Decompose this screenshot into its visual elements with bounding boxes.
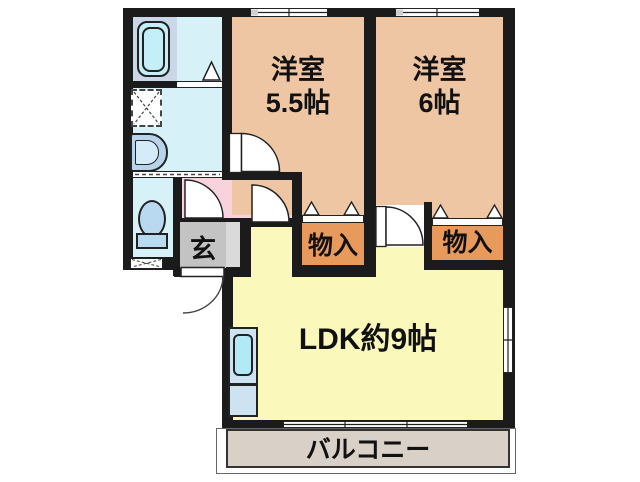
floor-plan: 洋室 5.5帖 洋室 6帖 LDK約9帖 物入 物入 玄 バルコニー (0, 0, 640, 482)
window-toilet-icon (130, 258, 163, 269)
wall-hall-top (222, 172, 302, 180)
wall-closet-left-side (292, 172, 302, 277)
window-ldk-right-icon (503, 307, 513, 373)
bedroom1-size: 5.5帖 (266, 87, 331, 120)
ldk-label: LDK約9帖 (233, 318, 503, 354)
bedroom1-name: 洋室 (271, 54, 325, 87)
closet-left-door-track-icon (302, 215, 364, 223)
wall-closet-left-bottom (292, 265, 376, 277)
window-bedroom1-icon (250, 8, 328, 17)
balcony-label: バルコニー (226, 433, 510, 463)
bathroom-floor (177, 17, 222, 81)
kitchen-counter-lower-icon (228, 384, 258, 417)
wall-closet-right-bottom (424, 260, 515, 270)
bedroom2-label: 洋室 6帖 (383, 52, 496, 122)
accordion-door-track-icon (133, 171, 222, 178)
closet-left-label: 物入 (302, 227, 364, 261)
window-bedroom2-icon (395, 8, 480, 17)
wall-entry-bottom (174, 267, 251, 277)
entrance-label: 玄 (180, 230, 226, 264)
wall-column-right (222, 8, 232, 180)
front-door-arc-icon (183, 276, 223, 313)
bedroom2-size: 6帖 (418, 87, 460, 120)
bathtub-inner-icon (142, 27, 165, 72)
bedroom2-doorway (376, 205, 427, 247)
toilet-tank-icon (136, 233, 168, 249)
wall-closet-right-side (424, 202, 432, 268)
closet-right-label: 物入 (432, 224, 503, 258)
bedroom1-label: 洋室 5.5帖 (238, 52, 358, 122)
bath-door-track-icon (177, 81, 222, 88)
wall-bath-bottom (133, 81, 177, 88)
washbasin-bowl-icon (135, 140, 159, 165)
window-balcony-icon (283, 421, 468, 428)
entrance-step (226, 222, 240, 267)
wall-entry-right (240, 218, 251, 268)
washing-machine-space-icon (131, 89, 162, 127)
bedroom2-name: 洋室 (413, 54, 467, 87)
wall-between-bedrooms (364, 8, 376, 277)
